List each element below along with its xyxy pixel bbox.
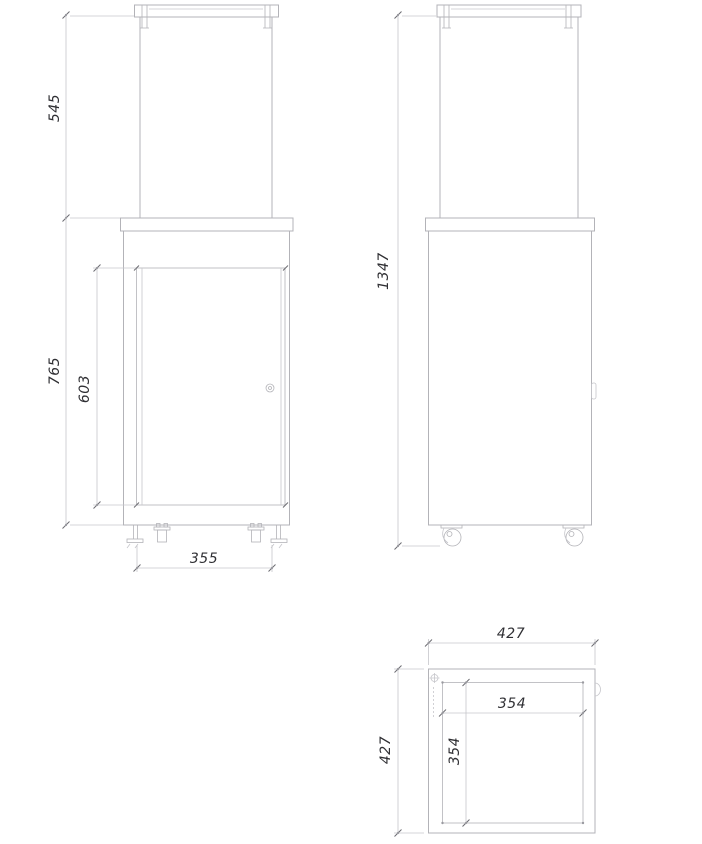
corner-dot [582,681,584,683]
dimension-outer-depth: 427 [378,666,424,837]
plate-lip [124,231,290,235]
door-knob [266,384,274,392]
dim-dot [96,267,98,269]
dimension-glass-height: 545 [47,12,134,222]
knob-inner [269,387,272,390]
dimension-outer-width: 427 [425,626,599,665]
ground-hatch [127,544,138,548]
caster-wheel [566,529,583,546]
door-corner-ticks [134,266,288,508]
ground-hatch [271,544,282,548]
door-inner-edges [142,268,281,505]
dim-dot [441,712,443,714]
caster-plate [154,527,170,530]
door [134,266,288,508]
dim-dot [465,822,467,824]
cap-outline [437,5,581,17]
caster-wheel-front [252,530,261,542]
side-casters [441,525,584,546]
technical-drawing: 545 765 603 355 [0,0,702,844]
glass-column [140,17,272,218]
dimension-label: 427 [497,626,525,642]
dim-dot [397,668,399,670]
corner-dot [441,822,443,824]
right-leveling-foot [271,525,287,548]
dimension-label: 354 [447,737,463,765]
corner-dot [582,822,584,824]
dim-dot [397,14,399,16]
dimension-label: 1347 [376,252,392,290]
dimension-label: 603 [77,375,93,403]
left-leveling-foot [127,525,143,548]
cabinet-body [124,231,290,525]
plate-lip [429,231,592,235]
front-view: 545 765 603 355 [47,5,293,572]
extension-line [93,268,136,505]
top-plate [121,218,294,231]
valve-cross [430,673,440,683]
dim-dot [65,14,67,16]
caster-plate [248,527,264,530]
dimension-label: 427 [378,736,394,764]
base-cabinet [426,218,597,525]
dimension-label: 765 [47,357,63,385]
top-cap [437,5,581,28]
right-caster [563,525,584,546]
cabinet-body [429,231,592,525]
foot-stem [134,525,138,539]
front-feet [127,524,287,549]
dimension-label: 355 [190,551,218,567]
caster-wheel-front [158,530,167,542]
dim-dot [136,567,138,569]
dimension-inner-depth: 354 [447,679,470,827]
top-view: 427 427 354 354 [378,626,601,837]
dimension-base-width: 355 [134,545,276,572]
cap-outline [135,5,279,17]
dim-dot [96,504,98,506]
base-cabinet [121,218,294,525]
left-caster-front [154,524,170,543]
knob-outer [266,384,274,392]
dimension-door-height: 603 [77,265,136,509]
dimension-total-height: 1347 [376,12,440,550]
dimension-label: 545 [47,94,63,122]
control-valve-detail [430,673,440,717]
glass-edges [440,17,578,218]
glass-column [440,17,578,218]
corner-dot [441,681,443,683]
left-caster [441,525,462,546]
extension-line [394,669,424,833]
glass-edges [140,17,272,218]
dim-dot [397,832,399,834]
dimension-body-height: 765 [47,218,123,529]
foot-plate [127,539,143,543]
caster-wheel [444,529,461,546]
dim-dot [594,642,596,644]
caster-hub [569,532,574,537]
door-outline [137,268,286,505]
foot-stem [277,525,281,539]
side-view: 1347 [376,5,596,550]
top-cap [135,5,279,28]
extension-line [402,16,440,546]
dim-dot [427,642,429,644]
top-plate [426,218,595,231]
dim-dot [582,712,584,714]
door-hinge-side [592,383,597,399]
dim-dot [65,524,67,526]
drawing-page: 545 765 603 355 [0,0,702,844]
right-caster-front [248,524,264,543]
dim-dot [397,545,399,547]
extension-line [70,16,134,218]
dimension-inner-width: 354 [439,696,587,717]
dim-dot [465,681,467,683]
hinge-bump-top [595,683,601,696]
foot-plate [271,539,287,543]
caster-hub [447,532,452,537]
dimension-label: 354 [498,696,526,712]
dim-dot [271,567,273,569]
